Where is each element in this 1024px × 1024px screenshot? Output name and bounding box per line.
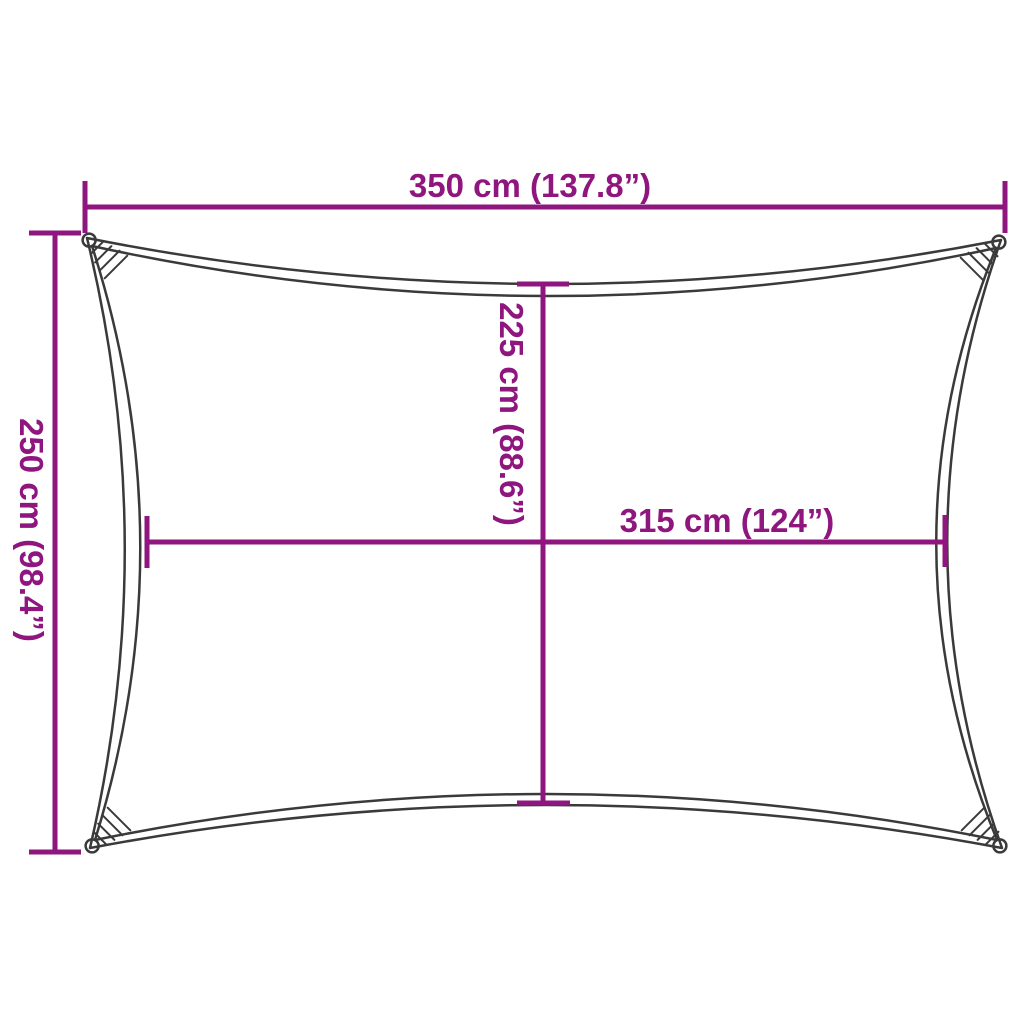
- dimension-label-width-inner: 315 cm (124”): [620, 502, 835, 539]
- corner-stitching: [962, 808, 985, 831]
- shade-sail-dimension-diagram: 350 cm (137.8”) 250 cm (98.4”) 225 cm (8…: [0, 0, 1024, 1024]
- corner-top-left: [73, 224, 127, 278]
- corner-top-right: [961, 226, 1015, 280]
- corner-stitching: [105, 256, 128, 279]
- dimension-lines: 350 cm (137.8”) 250 cm (98.4”) 225 cm (8…: [13, 167, 1005, 852]
- dimension-label-height-inner: 225 cm (88.6”): [493, 302, 530, 526]
- corner-bottom-left: [76, 808, 130, 862]
- dimension-width-overall: 350 cm (137.8”): [85, 167, 1005, 233]
- corner-bottom-right: [962, 808, 1016, 862]
- dimension-label-height-overall: 250 cm (98.4”): [13, 418, 50, 642]
- corner-stitching: [108, 808, 131, 831]
- corner-stitching: [961, 258, 984, 281]
- shade-sail-diagram-canvas: 350 cm (137.8”) 250 cm (98.4”) 225 cm (8…: [0, 0, 1024, 1024]
- dimension-label-width-overall: 350 cm (137.8”): [409, 167, 651, 204]
- dimension-width-inner: 315 cm (124”): [147, 502, 945, 568]
- dimension-height-overall: 250 cm (98.4”): [13, 233, 81, 852]
